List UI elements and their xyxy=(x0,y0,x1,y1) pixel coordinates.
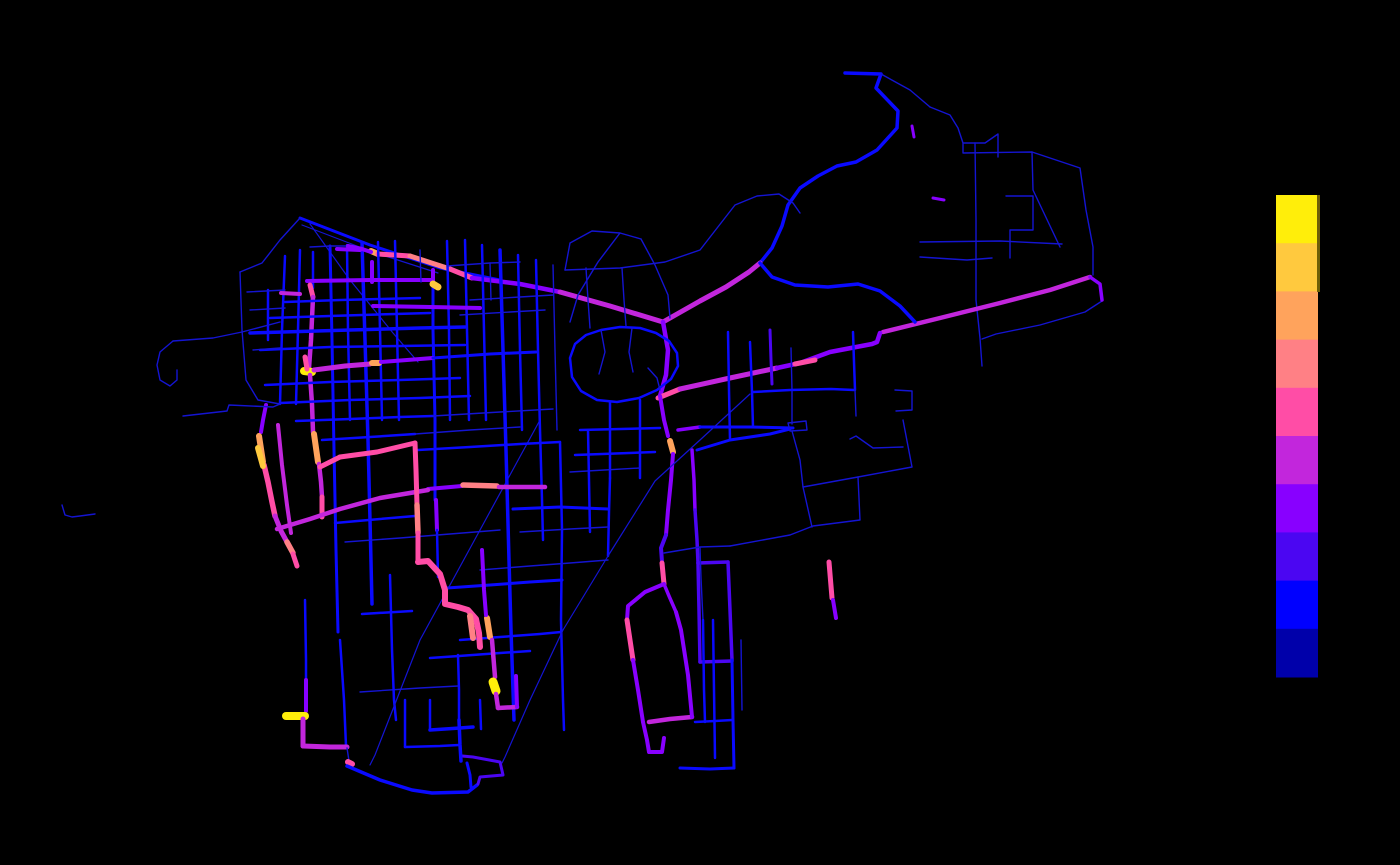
road-segment xyxy=(281,293,300,294)
road-segment xyxy=(829,562,832,598)
road-segment xyxy=(305,600,306,679)
road-segment xyxy=(698,562,728,563)
colorbar-segment xyxy=(1276,532,1318,581)
colorbar xyxy=(1276,195,1320,678)
road-segment xyxy=(670,441,673,452)
road-segment xyxy=(732,660,734,768)
figure xyxy=(0,0,1400,865)
street-network-map xyxy=(0,0,1400,865)
road-segment xyxy=(463,485,497,486)
colorbar-segment xyxy=(1276,195,1318,244)
road-segment xyxy=(498,707,517,708)
road-segment xyxy=(741,640,742,710)
road-segment xyxy=(492,640,495,677)
colorbar-segment xyxy=(1276,629,1318,678)
road-segment xyxy=(459,720,461,761)
road-segment xyxy=(348,762,352,764)
road-segment xyxy=(933,198,944,200)
road-segment xyxy=(912,126,914,137)
colorbar-segment xyxy=(1276,388,1318,437)
road-segment xyxy=(493,682,496,691)
road-segment xyxy=(490,263,491,300)
road-segment xyxy=(314,434,318,462)
road-segment xyxy=(436,500,437,530)
colorbar-segment xyxy=(1276,243,1318,292)
map-background xyxy=(0,0,1400,865)
road-segment xyxy=(337,249,360,250)
road-segment xyxy=(433,284,438,287)
road-segment xyxy=(458,655,459,720)
road-segment xyxy=(470,616,473,638)
road-segment xyxy=(770,330,772,384)
road-segment xyxy=(303,746,347,747)
road-segment xyxy=(662,563,664,584)
colorbar-segment xyxy=(1276,436,1318,485)
road-segment xyxy=(373,306,480,308)
colorbar-segment xyxy=(1276,484,1318,533)
road-segment xyxy=(305,357,307,369)
road-segment xyxy=(415,443,417,505)
colorbar-segment xyxy=(1276,581,1318,630)
road-segment xyxy=(378,254,410,256)
road-segment xyxy=(698,563,700,662)
colorbar-segment xyxy=(1276,291,1318,340)
road-segment xyxy=(417,505,418,533)
road-segment xyxy=(487,618,490,637)
road-segment xyxy=(855,390,856,416)
road-segment xyxy=(680,768,734,769)
colorbar-segment xyxy=(1276,340,1318,389)
road-segment xyxy=(516,676,517,707)
colorbar-edge-accent xyxy=(1317,195,1320,292)
road-segment xyxy=(480,700,481,729)
road-segment xyxy=(420,250,421,282)
